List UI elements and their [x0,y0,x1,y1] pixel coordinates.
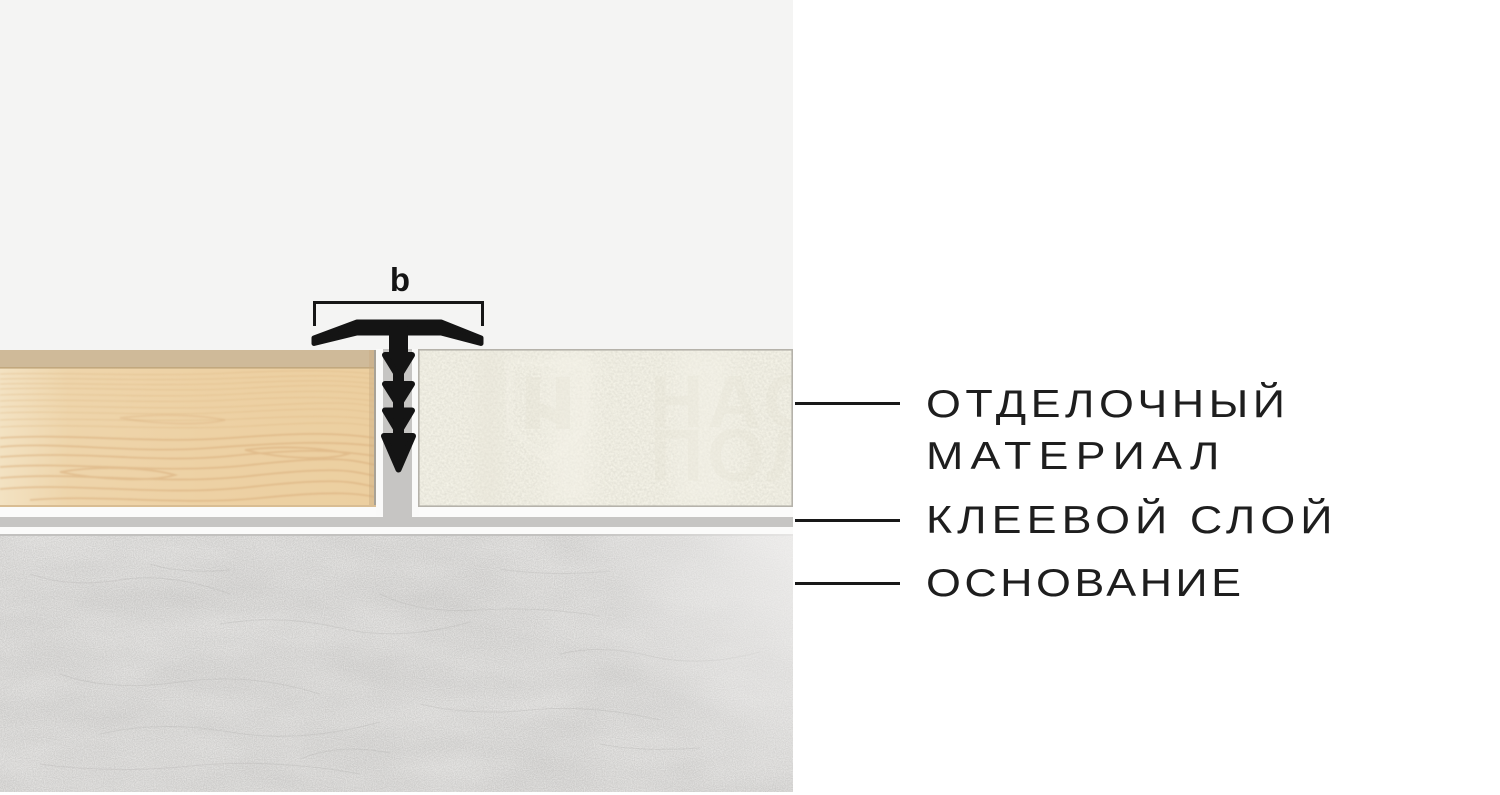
svg-text:ПОЛ: ПОЛ [650,414,793,497]
